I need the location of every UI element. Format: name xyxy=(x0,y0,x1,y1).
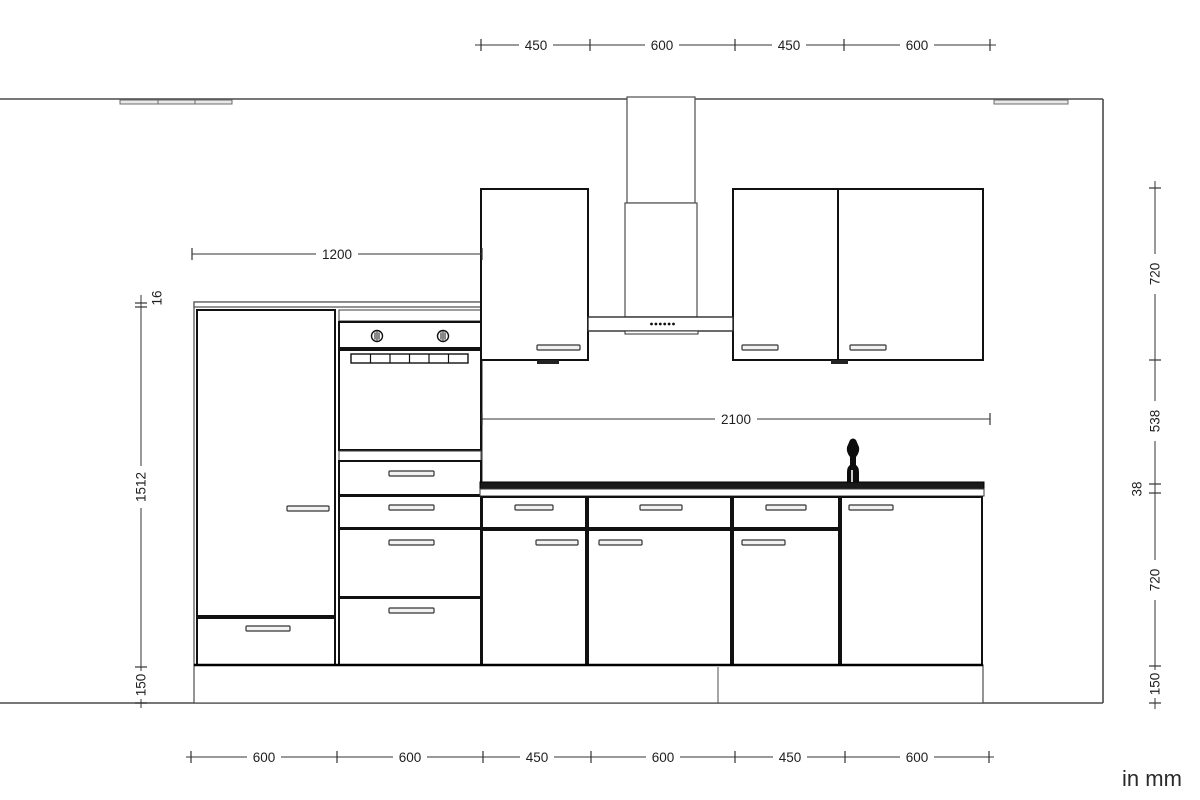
dim-label-top-3: 450 xyxy=(778,38,801,53)
base-unit3-door-handle xyxy=(742,540,785,545)
oven-column-filler-bottom xyxy=(339,451,481,461)
faucet xyxy=(847,439,859,483)
dim-label-right-150: 150 xyxy=(1148,673,1163,696)
larder-drawer xyxy=(197,618,335,665)
dim-label-bottom-5: 450 xyxy=(779,750,802,765)
dim-label-right-38: 38 xyxy=(1130,481,1145,496)
countertop-front-edge xyxy=(480,489,984,496)
units-label: in mm xyxy=(1122,766,1182,791)
dimension-right-chain: 720 538 38 720 150 xyxy=(1130,181,1163,709)
dim-label-left-16: 16 xyxy=(150,290,165,305)
dimension-1200: 1200 xyxy=(192,246,482,262)
oven-column-drawer-3-handle xyxy=(389,540,434,545)
wall-cabinet-right-handle-1 xyxy=(742,345,778,350)
base-unit1-door-handle xyxy=(536,540,578,545)
larder-door-handle xyxy=(287,506,329,511)
dim-label-left-1512: 1512 xyxy=(134,472,149,502)
oven-column-drawer-1 xyxy=(339,461,481,495)
base-unit2-door-handle xyxy=(599,540,642,545)
hood-duct-lower xyxy=(625,203,697,317)
dim-label-bottom-2: 600 xyxy=(399,750,422,765)
dim-label-bottom-3: 450 xyxy=(526,750,549,765)
dim-label-left-150: 150 xyxy=(134,674,149,697)
base-unit2-door xyxy=(588,530,731,665)
base-unit3-door xyxy=(733,530,839,665)
dimension-bottom-chain: 600 600 450 600 450 600 xyxy=(186,749,994,765)
dim-label-1200: 1200 xyxy=(322,247,352,262)
oven-knob xyxy=(372,331,383,342)
dim-label-bottom-4: 600 xyxy=(652,750,675,765)
larder-door xyxy=(197,310,335,616)
base-unit1-drawer xyxy=(482,497,586,528)
undercabinet-light-left xyxy=(537,360,559,364)
dimension-2100: 2100 xyxy=(482,411,990,427)
dim-label-top-1: 450 xyxy=(525,38,548,53)
dim-label-top-4: 600 xyxy=(906,38,929,53)
undercabinet-light-right xyxy=(831,360,848,364)
oven-column-drawer-2-handle xyxy=(389,505,434,510)
dim-label-right-538: 538 xyxy=(1148,410,1163,433)
base-unit2-drawer-handle xyxy=(640,505,682,510)
base-unit1-drawer-handle xyxy=(515,505,553,510)
larder-drawer-handle xyxy=(246,626,290,631)
tall-unit-block xyxy=(194,302,482,665)
oven-column-drawer-3 xyxy=(339,529,481,597)
base-unit3-drawer xyxy=(733,497,839,528)
wall-cabinet-right-door-1 xyxy=(733,189,838,360)
dim-label-right-720b: 720 xyxy=(1148,569,1163,592)
oven-control-panel xyxy=(339,322,481,348)
oven-knob xyxy=(438,331,449,342)
dim-label-2100: 2100 xyxy=(721,412,751,427)
base-unit3-drawer-handle xyxy=(766,505,806,510)
hood-duct-upper xyxy=(627,97,695,203)
hood-visor xyxy=(625,331,698,334)
oven-column-drawer-4-handle xyxy=(389,608,434,613)
oven-vent-grille xyxy=(351,354,468,363)
ceiling-rail-right xyxy=(994,100,1068,104)
dimension-left-chain: 16 1512 150 xyxy=(134,290,165,708)
dimension-top-chain: 450 600 450 600 xyxy=(475,37,996,53)
ceiling-rail-left xyxy=(120,100,232,104)
countertop xyxy=(480,482,984,489)
base-unit4-door xyxy=(841,497,982,665)
extractor-hood xyxy=(588,97,733,334)
wall-cabinet-left-handle xyxy=(537,345,580,350)
oven-door xyxy=(339,350,481,450)
oven-column-drawer-1-handle xyxy=(389,471,434,476)
wall-cabinet-left-door xyxy=(481,189,588,360)
tall-unit-top-panel xyxy=(194,302,482,307)
base-unit4-door-handle xyxy=(849,505,893,510)
base-unit1-door xyxy=(482,530,586,665)
wall-cabinets xyxy=(481,189,983,364)
dim-label-bottom-6: 600 xyxy=(906,750,929,765)
wall-cabinet-right-handle-2 xyxy=(850,345,886,350)
dim-label-right-720a: 720 xyxy=(1148,263,1163,286)
base-unit2-drawer xyxy=(588,497,731,528)
wall-cabinet-right-door-2 xyxy=(838,189,983,360)
elevation-drawing: 450 600 450 600 1200 2100 16 1512 150 xyxy=(0,0,1200,800)
plinth xyxy=(194,665,983,703)
dim-label-bottom-1: 600 xyxy=(253,750,276,765)
dim-label-top-2: 600 xyxy=(651,38,674,53)
oven-column-drawer-2 xyxy=(339,496,481,528)
oven-column-filler-top xyxy=(339,310,481,321)
kitchen-elevation-svg: 450 600 450 600 1200 2100 16 1512 150 xyxy=(0,0,1200,800)
